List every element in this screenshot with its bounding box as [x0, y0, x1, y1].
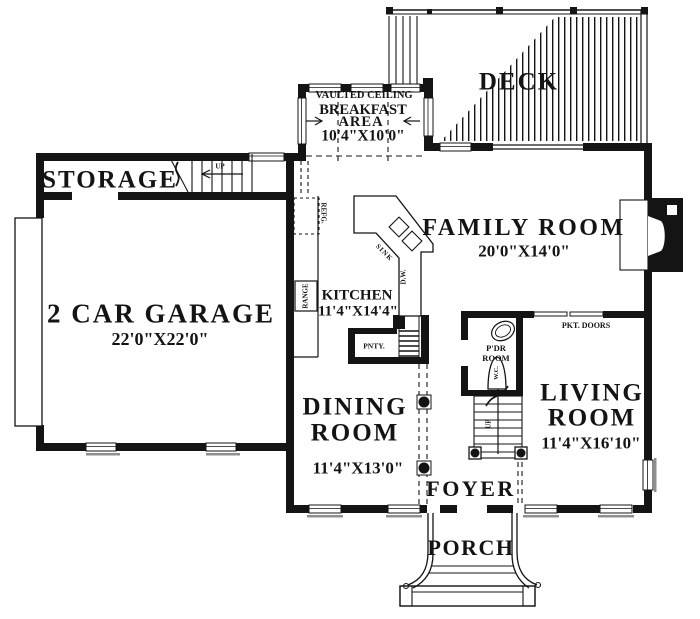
garage-door-opening — [15, 218, 42, 426]
label-living-dims: 11'4"X16'10" — [541, 435, 640, 452]
label-living-name2: ROOM — [548, 406, 637, 431]
label-living-name1: LIVING — [540, 381, 644, 406]
label-pantry: PNTY. — [363, 342, 385, 350]
label-porch: PORCH — [428, 537, 515, 559]
label-dishwasher: D.W. — [401, 270, 408, 285]
label-garage-dims: 22'0"X22'0" — [112, 330, 209, 348]
label-up-main: UP — [486, 419, 493, 428]
label-up-storage: UP — [215, 164, 224, 171]
label-kitchen-dims: 11'4"X14'4" — [318, 305, 398, 320]
floor-plan: STORAGE DECK VAULTED CEILING BREAKFAST A… — [0, 0, 700, 619]
label-range: RANGE — [303, 283, 310, 308]
label-breakfast-note: VAULTED CEILING — [315, 91, 412, 102]
label-family-dims: 20'0"X14'0" — [478, 243, 570, 260]
label-pocket-doors: PKT. DOORS — [562, 322, 610, 330]
label-foyer: FOYER — [426, 478, 516, 500]
pocket-door-leaf — [534, 312, 567, 316]
label-breakfast-dims: 10'4"X10'0" — [321, 128, 405, 144]
label-storage: STORAGE — [42, 168, 178, 193]
label-powder-name1: P'DR — [486, 344, 506, 353]
label-dining-name1: DINING — [302, 395, 407, 420]
fireplace — [620, 198, 683, 272]
label-water-closet: W.C. — [494, 366, 501, 380]
label-refrigerator: REFG. — [320, 202, 327, 223]
pocket-door-leaf — [570, 312, 603, 316]
label-powder-name2: ROOM — [482, 354, 509, 363]
label-deck: DECK — [479, 70, 559, 95]
label-dining-dims: 11'4"X13'0" — [313, 460, 404, 477]
refrigerator — [294, 198, 319, 234]
label-dining-name2: ROOM — [311, 421, 400, 446]
label-kitchen-name: KITCHEN — [322, 289, 393, 304]
label-family-name: FAMILY ROOM — [422, 216, 625, 240]
label-garage-name: 2 CAR GARAGE — [47, 301, 275, 328]
columns — [417, 395, 431, 475]
